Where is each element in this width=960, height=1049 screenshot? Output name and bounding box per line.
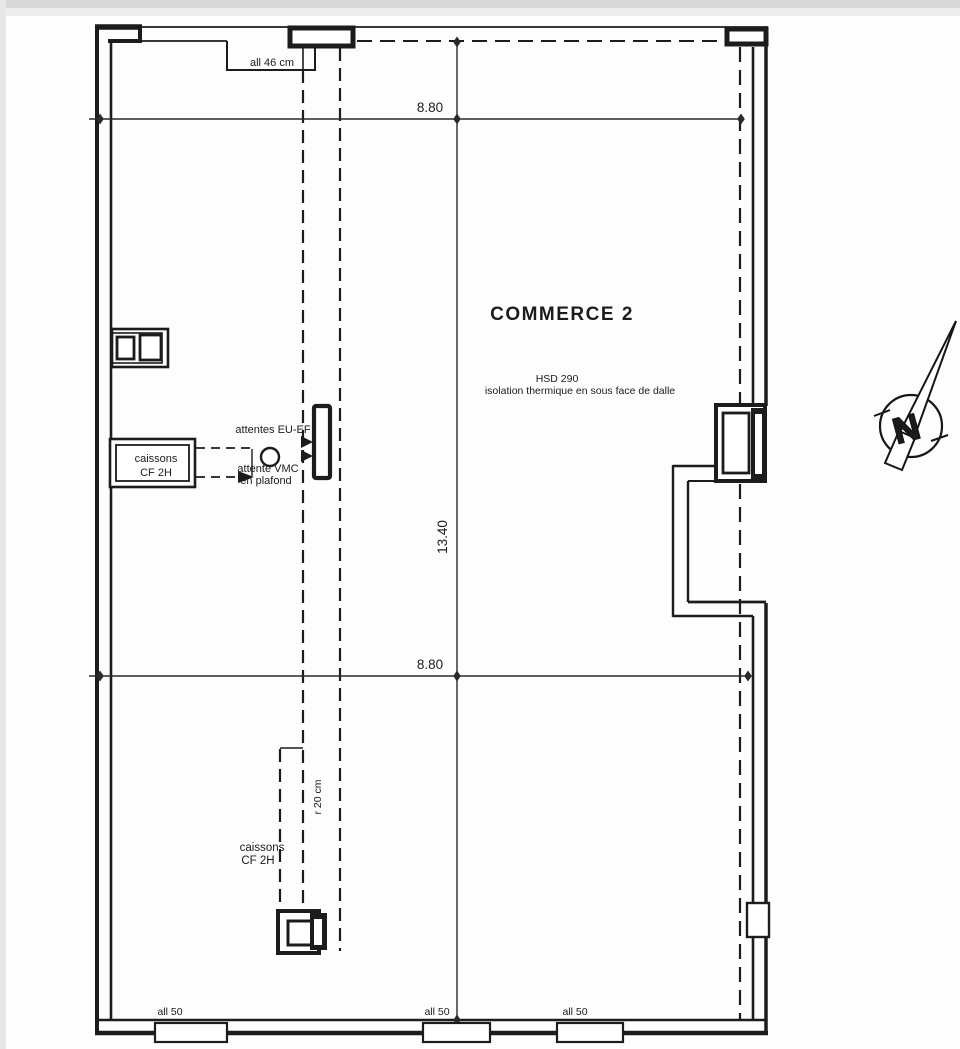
attentes-label: attentes EU-EF (235, 424, 310, 436)
room-note-1: HSD 290 (536, 373, 579, 385)
room-note-2: isolation thermique en sous face de dall… (485, 385, 675, 397)
floor-duct (278, 911, 327, 953)
left-wall-utility-box (112, 329, 168, 367)
right-wall-niche (747, 903, 769, 937)
sill-height-top-label: all 46 cm (250, 57, 294, 69)
pipe-chase (314, 406, 330, 478)
window-top-right (727, 29, 766, 44)
scan-margins (0, 0, 960, 1049)
caisson-lower-line2: CF 2H (241, 855, 274, 867)
dim-width-mid: 8.80 (417, 657, 443, 672)
sill-height-bottom-3: all 50 (562, 1006, 587, 1018)
vmc-label-1: attente VMC (237, 463, 298, 475)
caisson-upper-line2: CF 2H (140, 467, 172, 479)
window-top-center (290, 28, 353, 46)
window-bottom-3 (557, 1023, 623, 1042)
dim-height: 13.40 (435, 520, 450, 554)
floor-plan-page: all 46 cm 8.80 8.80 13.40 COMMERCE 2 (0, 0, 960, 1049)
dim-width-top: 8.80 (417, 100, 443, 115)
right-shaft (716, 405, 766, 481)
window-bottom-1 (155, 1023, 227, 1042)
sill-height-bottom-1: all 50 (157, 1006, 182, 1018)
caisson-lower-line1: caissons (240, 842, 285, 854)
floor-plan-drawing: all 46 cm 8.80 8.80 13.40 COMMERCE 2 (0, 0, 960, 1049)
duct-size-label: r 20 cm (312, 779, 324, 814)
window-bottom-2 (423, 1023, 490, 1042)
sill-height-bottom-2: all 50 (424, 1006, 449, 1018)
caisson-upper-line1: caissons (135, 453, 178, 465)
vmc-label-2: en plafond (240, 475, 291, 487)
room-name: COMMERCE 2 (490, 304, 634, 325)
